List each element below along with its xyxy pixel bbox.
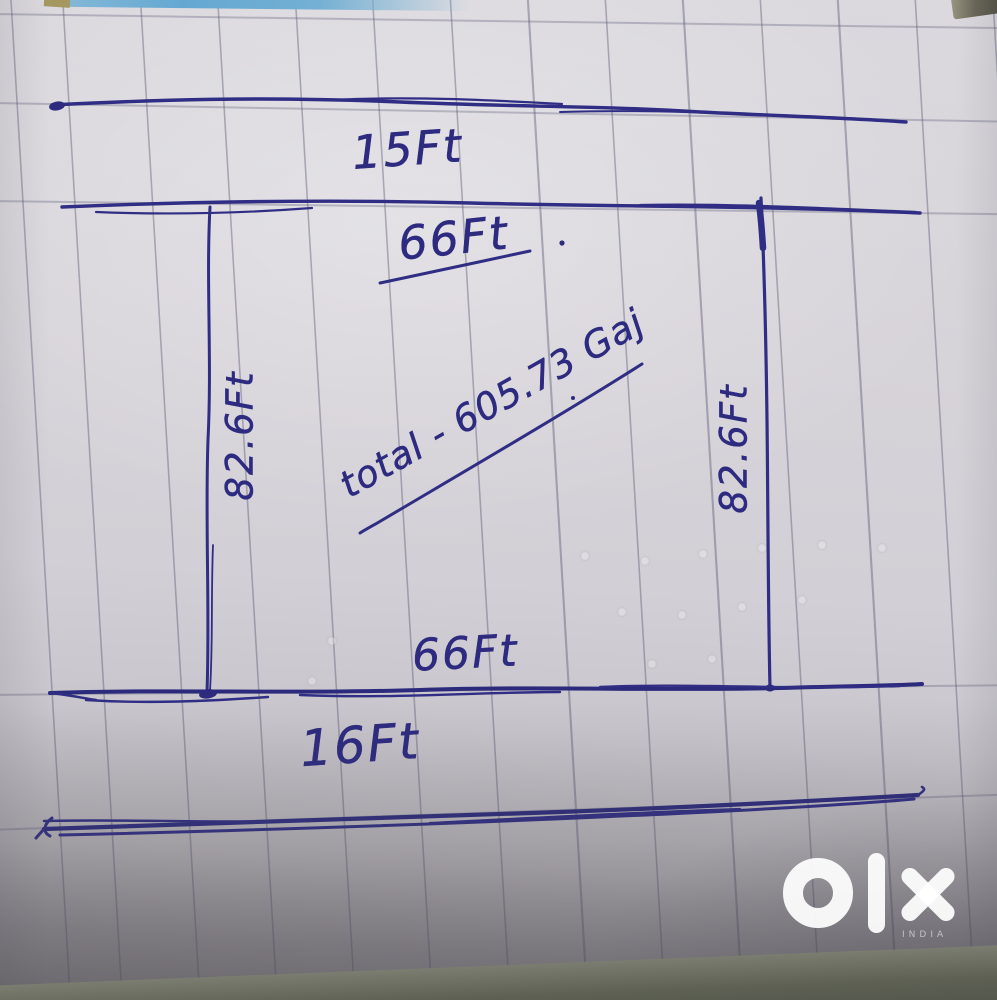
label-plot-top-width: 66Ft [395,205,511,270]
label-bottom-road-width: 16Ft [298,712,422,778]
label-top-road-width: 15Ft [350,118,465,180]
olx-logo-bar-icon [868,853,885,933]
olx-logo-o-icon [783,858,853,928]
pen-top-road-line [48,98,906,122]
label-plot-right-height: 82.6Ft [713,374,756,524]
pen-plot-left-line [202,207,216,697]
label-plot-bottom-width: 66Ft [411,625,520,682]
olx-india-label: INDIA [902,930,947,940]
pen-bottom-road-line [36,787,924,838]
plot-sketch-photo: 15Ft 66Ft 82.6Ft 82.6Ft total - 605.73 G… [0,0,997,1000]
pen-plot-bottom-line [50,684,922,702]
olx-logo-x-icon [895,861,961,927]
olx-watermark: INDIA [780,848,980,948]
label-plot-left-height: 82.6Ft [219,361,262,511]
pen-plot-right-line [759,198,775,692]
